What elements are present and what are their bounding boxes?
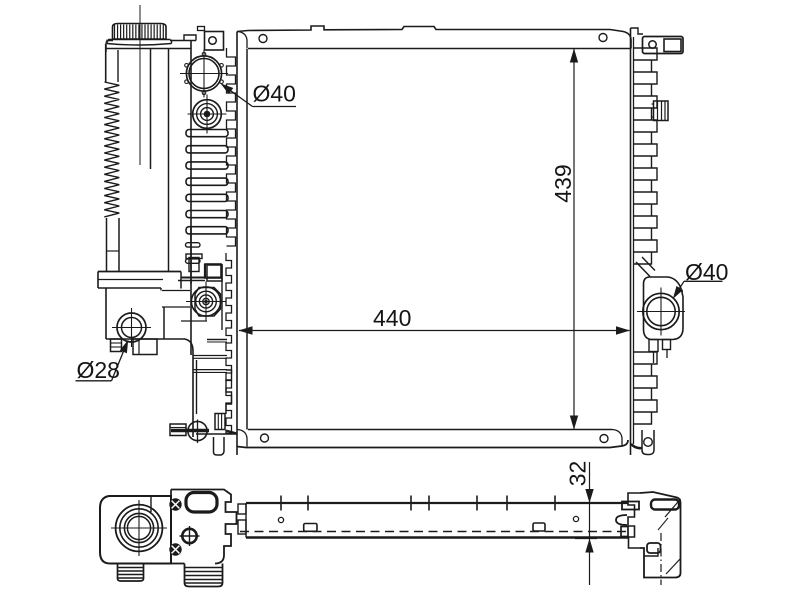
svg-text:32: 32: [565, 461, 591, 487]
svg-text:440: 440: [373, 305, 411, 331]
svg-text:Ø28: Ø28: [77, 357, 120, 383]
svg-text:Ø40: Ø40: [253, 81, 296, 107]
svg-text:Ø40: Ø40: [685, 259, 728, 285]
svg-text:439: 439: [550, 164, 576, 202]
